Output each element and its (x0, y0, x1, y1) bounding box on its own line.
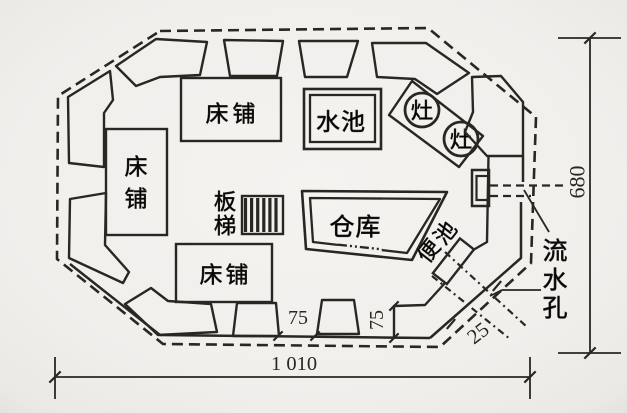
svg-text:1 010: 1 010 (271, 353, 317, 375)
svg-text:75: 75 (288, 307, 308, 329)
svg-text:680: 680 (565, 166, 590, 199)
svg-text:75: 75 (366, 310, 388, 330)
